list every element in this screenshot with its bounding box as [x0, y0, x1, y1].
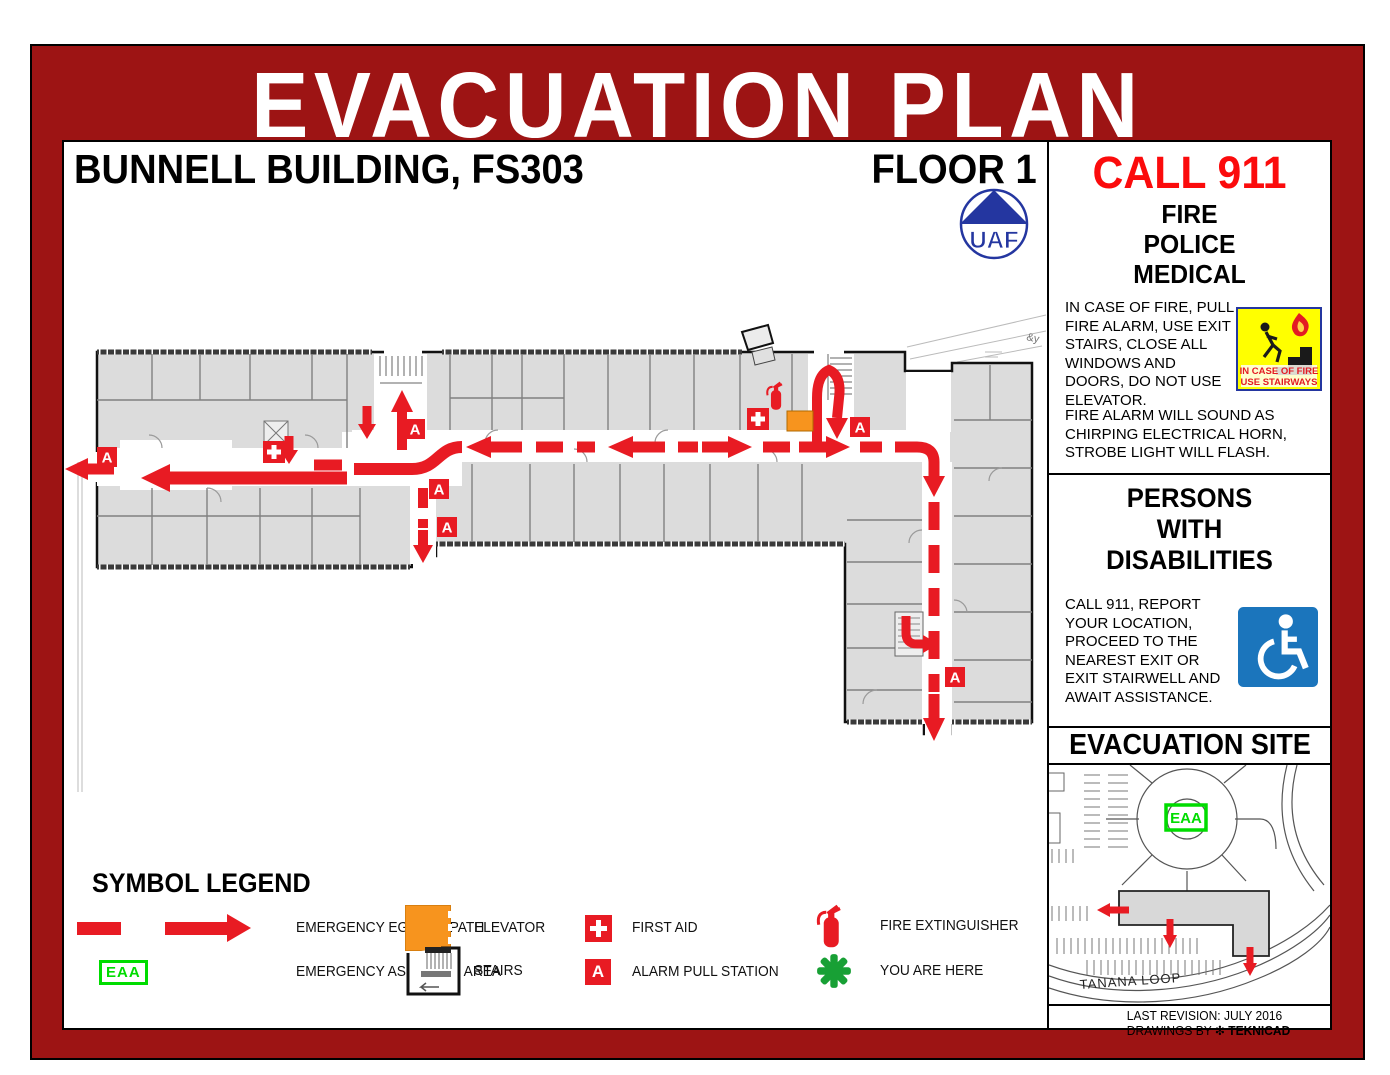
- use-stairways-sign: IN CASE OF FIRE USE STAIRWAYS: [1236, 307, 1322, 391]
- stairs-icon: [405, 945, 462, 997]
- credit-name: TEKNICAD: [1228, 1024, 1290, 1038]
- legend-label: FIRE EXTINGUISHER: [880, 918, 1019, 934]
- legend-label: FIRST AID: [632, 920, 698, 936]
- info-sidebar: CALL 911 FIRE POLICE MEDICAL IN CASE OF …: [1049, 142, 1330, 1028]
- first-aid-icon: [585, 915, 612, 942]
- you-are-here-icon: [815, 952, 853, 990]
- revision-date: LAST REVISION: JULY 2016: [1127, 1009, 1290, 1024]
- teknicad-logo-icon: ❇: [1215, 1024, 1225, 1038]
- assembly-area-icon: EAA: [99, 960, 148, 985]
- site-edge-structures: [1049, 773, 1064, 843]
- content-sheet: BUNNELL BUILDING, FS303 FLOOR 1 UAF &y: [62, 140, 1332, 1030]
- disabilities-section: PERSONS WITH DISABILITIES CALL 911, REPO…: [1049, 483, 1330, 728]
- poster-frame: EVACUATION PLAN BUNNELL BUILDING, FS303 …: [30, 44, 1365, 1060]
- fire-instructions: IN CASE OF FIRE, PULL FIRE ALARM, USE EX…: [1065, 299, 1237, 410]
- legend-label: YOU ARE HERE: [880, 963, 983, 979]
- legend-item-stairs: STAIRS: [405, 944, 525, 998]
- disabilities-instructions: CALL 911, REPORT YOUR LOCATION, PROCEED …: [1065, 596, 1233, 707]
- sign-line2: USE STAIRWAYS: [1241, 377, 1318, 388]
- site-roads: [1049, 765, 1330, 1002]
- service-police: POLICE: [1056, 229, 1323, 259]
- legend-title: SYMBOL LEGEND: [92, 868, 311, 899]
- elevator-symbol: [787, 411, 813, 431]
- legend-item-firstaid: FIRST AID: [585, 903, 701, 953]
- legend-item-alarm: A ALARM PULL STATION: [585, 947, 786, 997]
- service-fire: FIRE: [1056, 199, 1323, 229]
- svg-text:A: A: [855, 420, 866, 437]
- site-fragment-text: &y: [1025, 331, 1041, 346]
- svg-text:A: A: [950, 670, 961, 687]
- svg-text:A: A: [442, 520, 453, 537]
- site-map: EAA TANANA LOOP: [1049, 765, 1330, 1004]
- evacuation-site-header: EVACUATION SITE: [1049, 728, 1330, 765]
- plan-panel: BUNNELL BUILDING, FS303 FLOOR 1 UAF &y: [64, 142, 1049, 1028]
- alarm-note: FIRE ALARM WILL SOUND AS CHIRPING ELECTR…: [1065, 407, 1290, 463]
- revision-section: LAST REVISION: JULY 2016 DRAWINGS BY ❇ T…: [1049, 1006, 1330, 1039]
- legend-label: ALARM PULL STATION: [632, 964, 779, 980]
- evacuation-site-map: EAA TANANA LOOP: [1049, 765, 1330, 1006]
- revision-block: LAST REVISION: JULY 2016 DRAWINGS BY ❇ T…: [1127, 1009, 1290, 1038]
- legend-label: ELEVATOR: [474, 920, 545, 936]
- svg-text:A: A: [410, 422, 421, 439]
- call-911-section: CALL 911 FIRE POLICE MEDICAL IN CASE OF …: [1049, 147, 1330, 475]
- legend-label: STAIRS: [474, 963, 523, 979]
- svg-text:EAA: EAA: [1170, 810, 1202, 827]
- legend-item-youarehere: YOU ARE HERE: [815, 944, 989, 998]
- call-911-heading: CALL 911: [1056, 147, 1323, 199]
- svg-text:A: A: [102, 450, 113, 467]
- evacuation-site-title: EVACUATION SITE: [1069, 729, 1311, 762]
- service-medical: MEDICAL: [1056, 259, 1323, 289]
- wheelchair-icon: [1238, 607, 1318, 687]
- sign-line1: IN CASE OF FIRE: [1240, 366, 1319, 377]
- site-assembly-area: EAA: [1166, 805, 1206, 830]
- fire-extinguisher-icon: [815, 902, 845, 950]
- disabilities-heading: PERSONS WITH DISABILITIES: [1056, 483, 1323, 576]
- alarm-pull-station-icon: A: [585, 959, 611, 985]
- egress-path-icon: [77, 914, 296, 942]
- credit-prefix: DRAWINGS BY: [1127, 1024, 1212, 1038]
- svg-text:A: A: [434, 482, 445, 499]
